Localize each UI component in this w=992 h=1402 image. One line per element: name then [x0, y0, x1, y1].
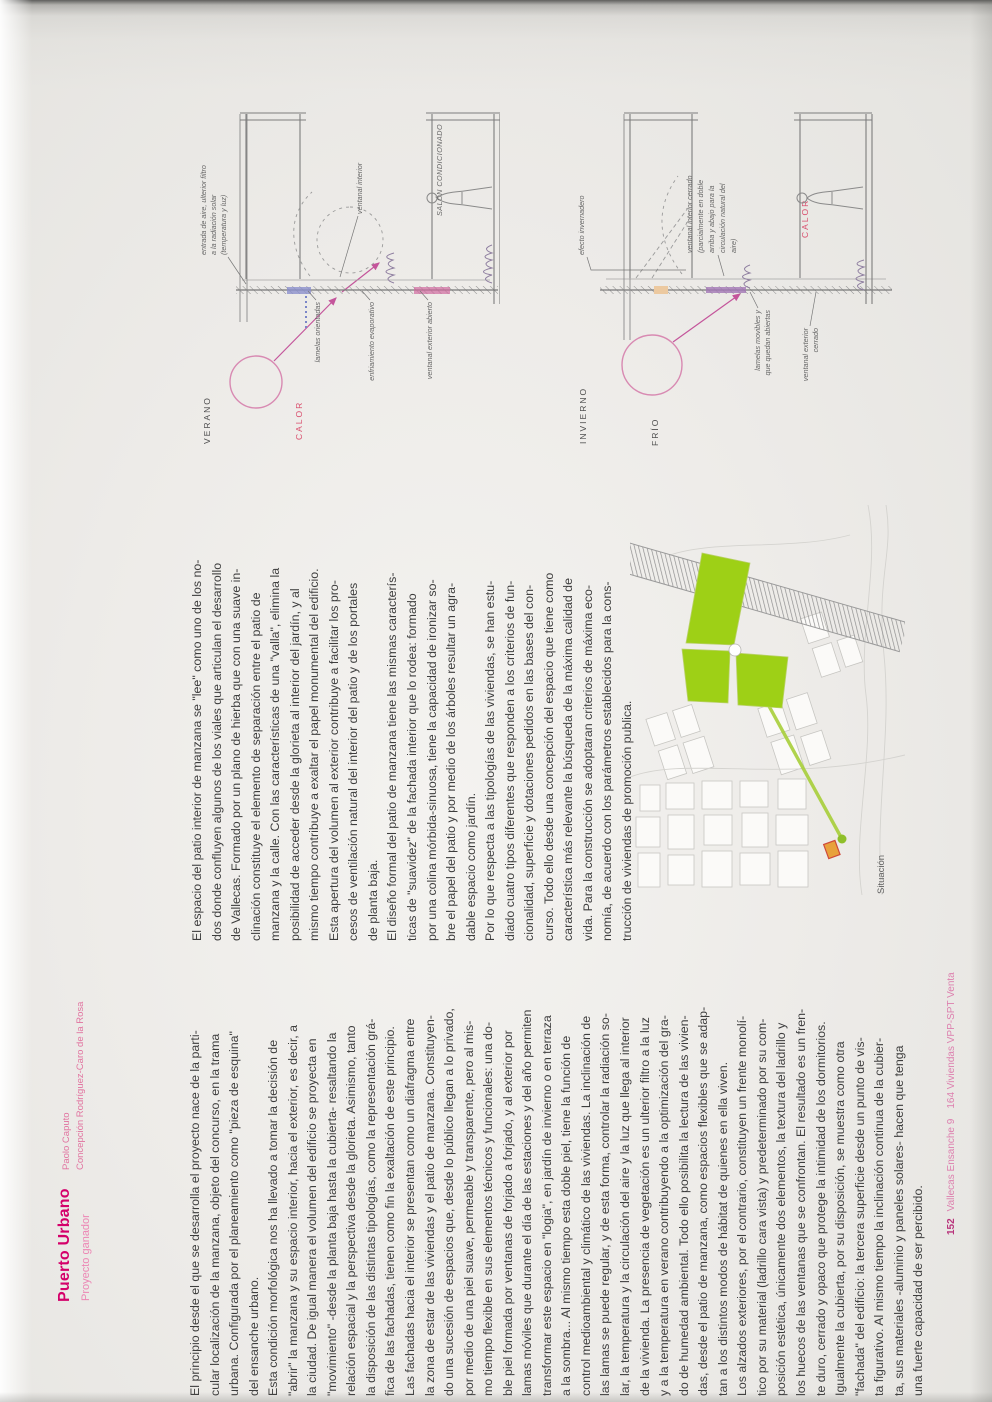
text-line: las lamas se puede regular, y de esta fo… [598, 951, 618, 1396]
page-number: 152 [946, 1218, 957, 1235]
rotated-page: Puerto Urbano Proyecto ganador Paolo Cap… [0, 0, 992, 1402]
text-line: bre el papel del patio y por medio de lo… [444, 501, 464, 941]
sun-icon [622, 335, 682, 395]
note-line5: aire) [729, 239, 738, 253]
page-footer: 152Vallecas Ensanche 9164 Viviendas VPP-… [946, 972, 957, 1235]
leader-sun-note [228, 257, 246, 284]
text-line: posición estética, únicamente dos elemen… [774, 951, 794, 1396]
text-line: cesos de ventilación natural del interio… [346, 501, 366, 941]
footer-project-ref: 164 Viviendas VPP-SPT Venta [946, 972, 957, 1108]
text-line: Esta apertura del volumen al exterior co… [327, 501, 347, 941]
text-line: nomía, de acuerdo con los parámetros est… [600, 501, 620, 941]
text-line: El espacio del patio interior de manzana… [190, 501, 210, 941]
label-louvers-line1: lamelas movibles y [753, 310, 762, 371]
label-ext-window: ventanal exterior abierto [425, 302, 434, 379]
text-line: transformar este espacio en "logia", en … [540, 951, 560, 1396]
plaza-circle [729, 644, 741, 656]
season-label-winter: INVIERNO [578, 387, 588, 444]
text-line: "abrir" la manzana y su espacio interior… [286, 951, 306, 1396]
plants-lower [856, 260, 864, 290]
text-line: de la vivienda. La presencia de vegetaci… [638, 951, 658, 1396]
text-line: clinación constituye el elemento de sepa… [249, 501, 269, 941]
note-line2: (parcialmente en doble [696, 180, 705, 253]
warm-air-arc [662, 176, 682, 274]
text-line: cular localización de la manzana, objeto… [208, 951, 228, 1396]
note-line3: arriba y abajo para la [707, 185, 716, 253]
heat-label-winter: CALOR [800, 199, 810, 238]
sun-ray-arrow [673, 294, 740, 342]
leader-int-window [340, 216, 358, 277]
text-line: fica de las fachadas, tienen como fin la… [383, 951, 403, 1396]
author-1: Paolo Caputo [60, 1112, 73, 1170]
text-line: lamas móviles que durante el día de las … [520, 951, 540, 1396]
avenue-roundabout [838, 835, 847, 844]
text-line: diado cuatro tipos diferentes que respon… [503, 501, 523, 941]
body-column-2: El espacio del patio interior de manzana… [190, 501, 640, 941]
text-line: ticas de "suavidez" de la fachada interi… [405, 501, 425, 941]
text-line: relación espacial y la perspectiva desde… [344, 951, 364, 1396]
situation-map [630, 505, 905, 895]
label-room: SALÓN CONDICIONADO [435, 124, 444, 216]
note-line1: ventanal interior cerrado [685, 175, 694, 253]
roof-lines [624, 114, 630, 340]
text-line: característica más relevante la búsqueda… [561, 501, 581, 941]
note-line4: circulación natural del [718, 183, 727, 253]
green-parcels [682, 553, 788, 708]
text-line: Igualmente la cubierta, por su disposici… [833, 951, 853, 1396]
label-ext-window-line1: ventanal exterior [801, 327, 810, 381]
text-line: mismo tiempo contribuye a exaltar el pap… [307, 501, 327, 941]
text-line: de planta baja. [366, 501, 386, 941]
window-highlight-blue [287, 287, 311, 294]
label-ext-window-line2: cerrado [811, 328, 820, 352]
footer-book-title: Vallecas Ensanche 9 [946, 1119, 957, 1212]
text-line: dable espacio como jardín. [464, 501, 484, 941]
text-line: posibilidad de acceder desde la glorieta… [288, 501, 308, 941]
text-line: la zona de estar de las viviendas y el p… [423, 951, 443, 1396]
text-line: te duro, cerrado y opaco que protege la … [814, 951, 834, 1396]
sketch-summer-section: VERANO CALOR lamelas orientadas enfriami… [190, 100, 500, 460]
scanned-book-page: { "header": { "title": "Puerto Urbano", … [0, 0, 992, 1402]
text-line: del ensanche urbano. [247, 951, 267, 1396]
upper-room-section [240, 113, 306, 279]
text-line: tico por su material (ladrillo cara vist… [755, 951, 775, 1396]
window-highlight-purple [706, 287, 746, 293]
text-line: tan a los distintos modos de hábitat de … [716, 951, 736, 1396]
text-line: dos donde confluyen algunos de los viale… [210, 501, 230, 941]
text-line: das, desde el patio de manzana, como esp… [696, 951, 716, 1396]
text-line: ble piel formada por ventanas de forjado… [501, 951, 521, 1396]
text-line: urbana. Configurada por el planeamiento … [227, 951, 247, 1396]
window-highlight-pink [414, 287, 450, 294]
airflow-swirl [317, 207, 383, 273]
leader-louvers [750, 292, 758, 308]
sketch-winter-section: INVIERNO FRÍO CALOR efecto invernadero v… [560, 100, 910, 460]
text-line: una fuerte capacidad de ser percibido. [911, 951, 931, 1396]
sun-note-line1: entrada de aire, ulterior filtro [199, 165, 208, 255]
text-line: cionalidad, superficie y dotaciones pedi… [522, 501, 542, 941]
text-line: control medioambiental y climático de la… [579, 951, 599, 1396]
text-line: El diseño formal del patio de manzana ti… [385, 501, 405, 941]
text-line: y a la temperatura en verano contribuyen… [657, 951, 677, 1396]
text-line: la disposición de las distintas tipologí… [364, 951, 384, 1396]
text-line: "fachada" del edificio: la tercera super… [853, 951, 873, 1396]
text-line: la ciudad. De igual manera el volumen de… [305, 951, 325, 1396]
text-line: de Vallecas. Formado por un plano de hie… [229, 501, 249, 941]
text-line: do de humedad ambiental. Todo ello posib… [677, 951, 697, 1396]
text-line: por una colina mórbida-sinuosa, tiene la… [425, 501, 445, 941]
text-line: Los alzados exteriores, por el contrario… [735, 951, 755, 1396]
text-line: manzana y la calle. Con las característi… [268, 501, 288, 941]
text-line: mo tiempo flexible en sus elementos técn… [481, 951, 501, 1396]
map-caption: Situación [876, 855, 887, 894]
plants-lower [484, 245, 493, 283]
page-subtitle: Proyecto ganador [80, 1214, 92, 1301]
author-2: Concepción Rodríguez-Caro de la Rosa [74, 1002, 87, 1170]
body-column-1: El principio desde el que se desarrolla … [188, 951, 931, 1396]
text-line: Esta condición morfológica nos ha llevad… [266, 951, 286, 1396]
text-line: ta figurativo. Al mismo tiempo la inclin… [872, 951, 892, 1396]
text-line: El principio desde el que se desarrolla … [188, 951, 208, 1396]
text-line: lar, la temperatura y la circulación del… [618, 951, 638, 1396]
leader-greenhouse [587, 257, 686, 270]
railway-band [630, 543, 905, 652]
text-line: vida. Para la construcción se adoptaran … [581, 501, 601, 941]
text-line: ta, sus materiales -aluminio y paneles s… [892, 951, 912, 1396]
cold-label: FRÍO [650, 418, 660, 446]
label-louvers-line2: que quedan abiertas [763, 310, 772, 376]
text-line: Por lo que respecta a las tipologías de … [483, 501, 503, 941]
heat-label-summer: CALOR [294, 401, 304, 440]
sun-note-line3: (temperatura y luz) [219, 195, 228, 255]
sun-icon [230, 356, 282, 408]
text-line: do una sucesión de espacios que, desde l… [442, 951, 462, 1396]
airflow-arc [294, 192, 312, 276]
page-title: Puerto Urbano [56, 1188, 74, 1302]
text-line: curso. Todo ello desde una concepción de… [542, 501, 562, 941]
label-greenhouse: efecto invernadero [577, 195, 586, 255]
label-louvers: lamelas orientadas [313, 302, 322, 363]
window-highlight-tan [654, 286, 668, 294]
sun-note-line2: a la radiación solar [209, 194, 218, 255]
text-line: por medio de una piel suave, permeable y… [462, 951, 482, 1396]
project-site-block [824, 840, 840, 858]
leader-ext-window [810, 292, 816, 326]
text-line: a la sombra... Al mismo tiempo esta dobl… [559, 951, 579, 1396]
text-line: Las fachadas hacia el interior se presen… [403, 951, 423, 1396]
leader-note [718, 255, 724, 276]
season-label-summer: VERANO [202, 396, 212, 444]
text-line: los huecos de las ventanas que se confro… [794, 951, 814, 1396]
label-cooling: enfriamiento evaporativo [367, 302, 376, 381]
label-int-window: ventanal interior [355, 162, 364, 214]
text-line: "movimiento" -desde la planta baja hasta… [325, 951, 345, 1396]
plants-mid [386, 253, 394, 283]
greenhouse-rays [636, 208, 690, 278]
plants-mid [743, 265, 751, 288]
